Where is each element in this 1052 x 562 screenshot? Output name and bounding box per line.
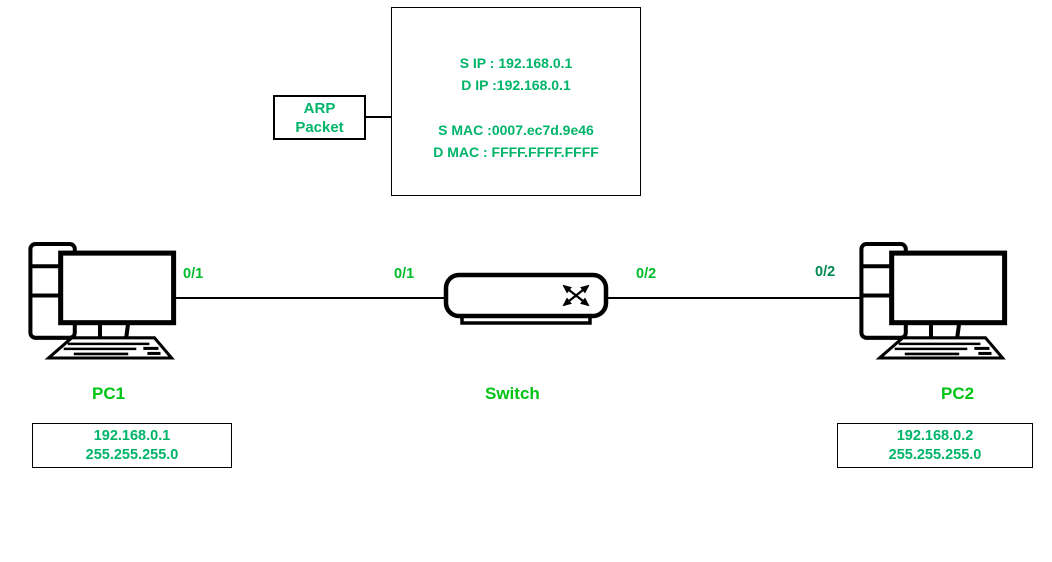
arp-note-connector-line bbox=[366, 116, 391, 118]
switch-name-label: Switch bbox=[485, 384, 540, 404]
arp-packet-label-line2: Packet bbox=[295, 118, 343, 137]
port-label-pc2-side: 0/2 bbox=[815, 264, 835, 280]
pc2-ip-address: 192.168.0.2 bbox=[838, 427, 1032, 446]
pc2-icon[interactable] bbox=[856, 240, 1008, 361]
note-source-ip: S IP : 192.168.0.1 bbox=[392, 52, 640, 74]
pc2-subnet-mask: 255.255.255.0 bbox=[838, 446, 1032, 465]
arp-packet-label-line1: ARP bbox=[304, 99, 336, 118]
pc1-subnet-mask: 255.255.255.0 bbox=[33, 446, 231, 465]
pc1-icon[interactable] bbox=[25, 240, 177, 361]
link-pc1-switch[interactable] bbox=[173, 297, 445, 299]
port-label-pc1-side: 0/1 bbox=[183, 266, 203, 282]
note-source-mac: S MAC :0007.ec7d.9e46 bbox=[392, 119, 640, 141]
port-label-switch-left: 0/1 bbox=[394, 266, 414, 282]
link-switch-pc2[interactable] bbox=[607, 297, 861, 299]
note-dest-mac: D MAC : FFFF.FFFF.FFFF bbox=[392, 141, 640, 163]
arp-detail-note[interactable]: S IP : 192.168.0.1 D IP :192.168.0.1 S M… bbox=[391, 7, 641, 196]
topology-canvas: S IP : 192.168.0.1 D IP :192.168.0.1 S M… bbox=[0, 0, 1052, 562]
pc2-name-label: PC2 bbox=[941, 384, 974, 404]
pc2-ip-note[interactable]: 192.168.0.2 255.255.255.0 bbox=[837, 423, 1033, 468]
port-label-switch-right: 0/2 bbox=[636, 266, 656, 282]
arp-packet-label-box[interactable]: ARP Packet bbox=[273, 95, 366, 140]
switch-icon[interactable] bbox=[442, 271, 610, 329]
pc1-name-label: PC1 bbox=[92, 384, 125, 404]
pc1-ip-address: 192.168.0.1 bbox=[33, 427, 231, 446]
note-dest-ip: D IP :192.168.0.1 bbox=[392, 74, 640, 96]
pc1-ip-note[interactable]: 192.168.0.1 255.255.255.0 bbox=[32, 423, 232, 468]
